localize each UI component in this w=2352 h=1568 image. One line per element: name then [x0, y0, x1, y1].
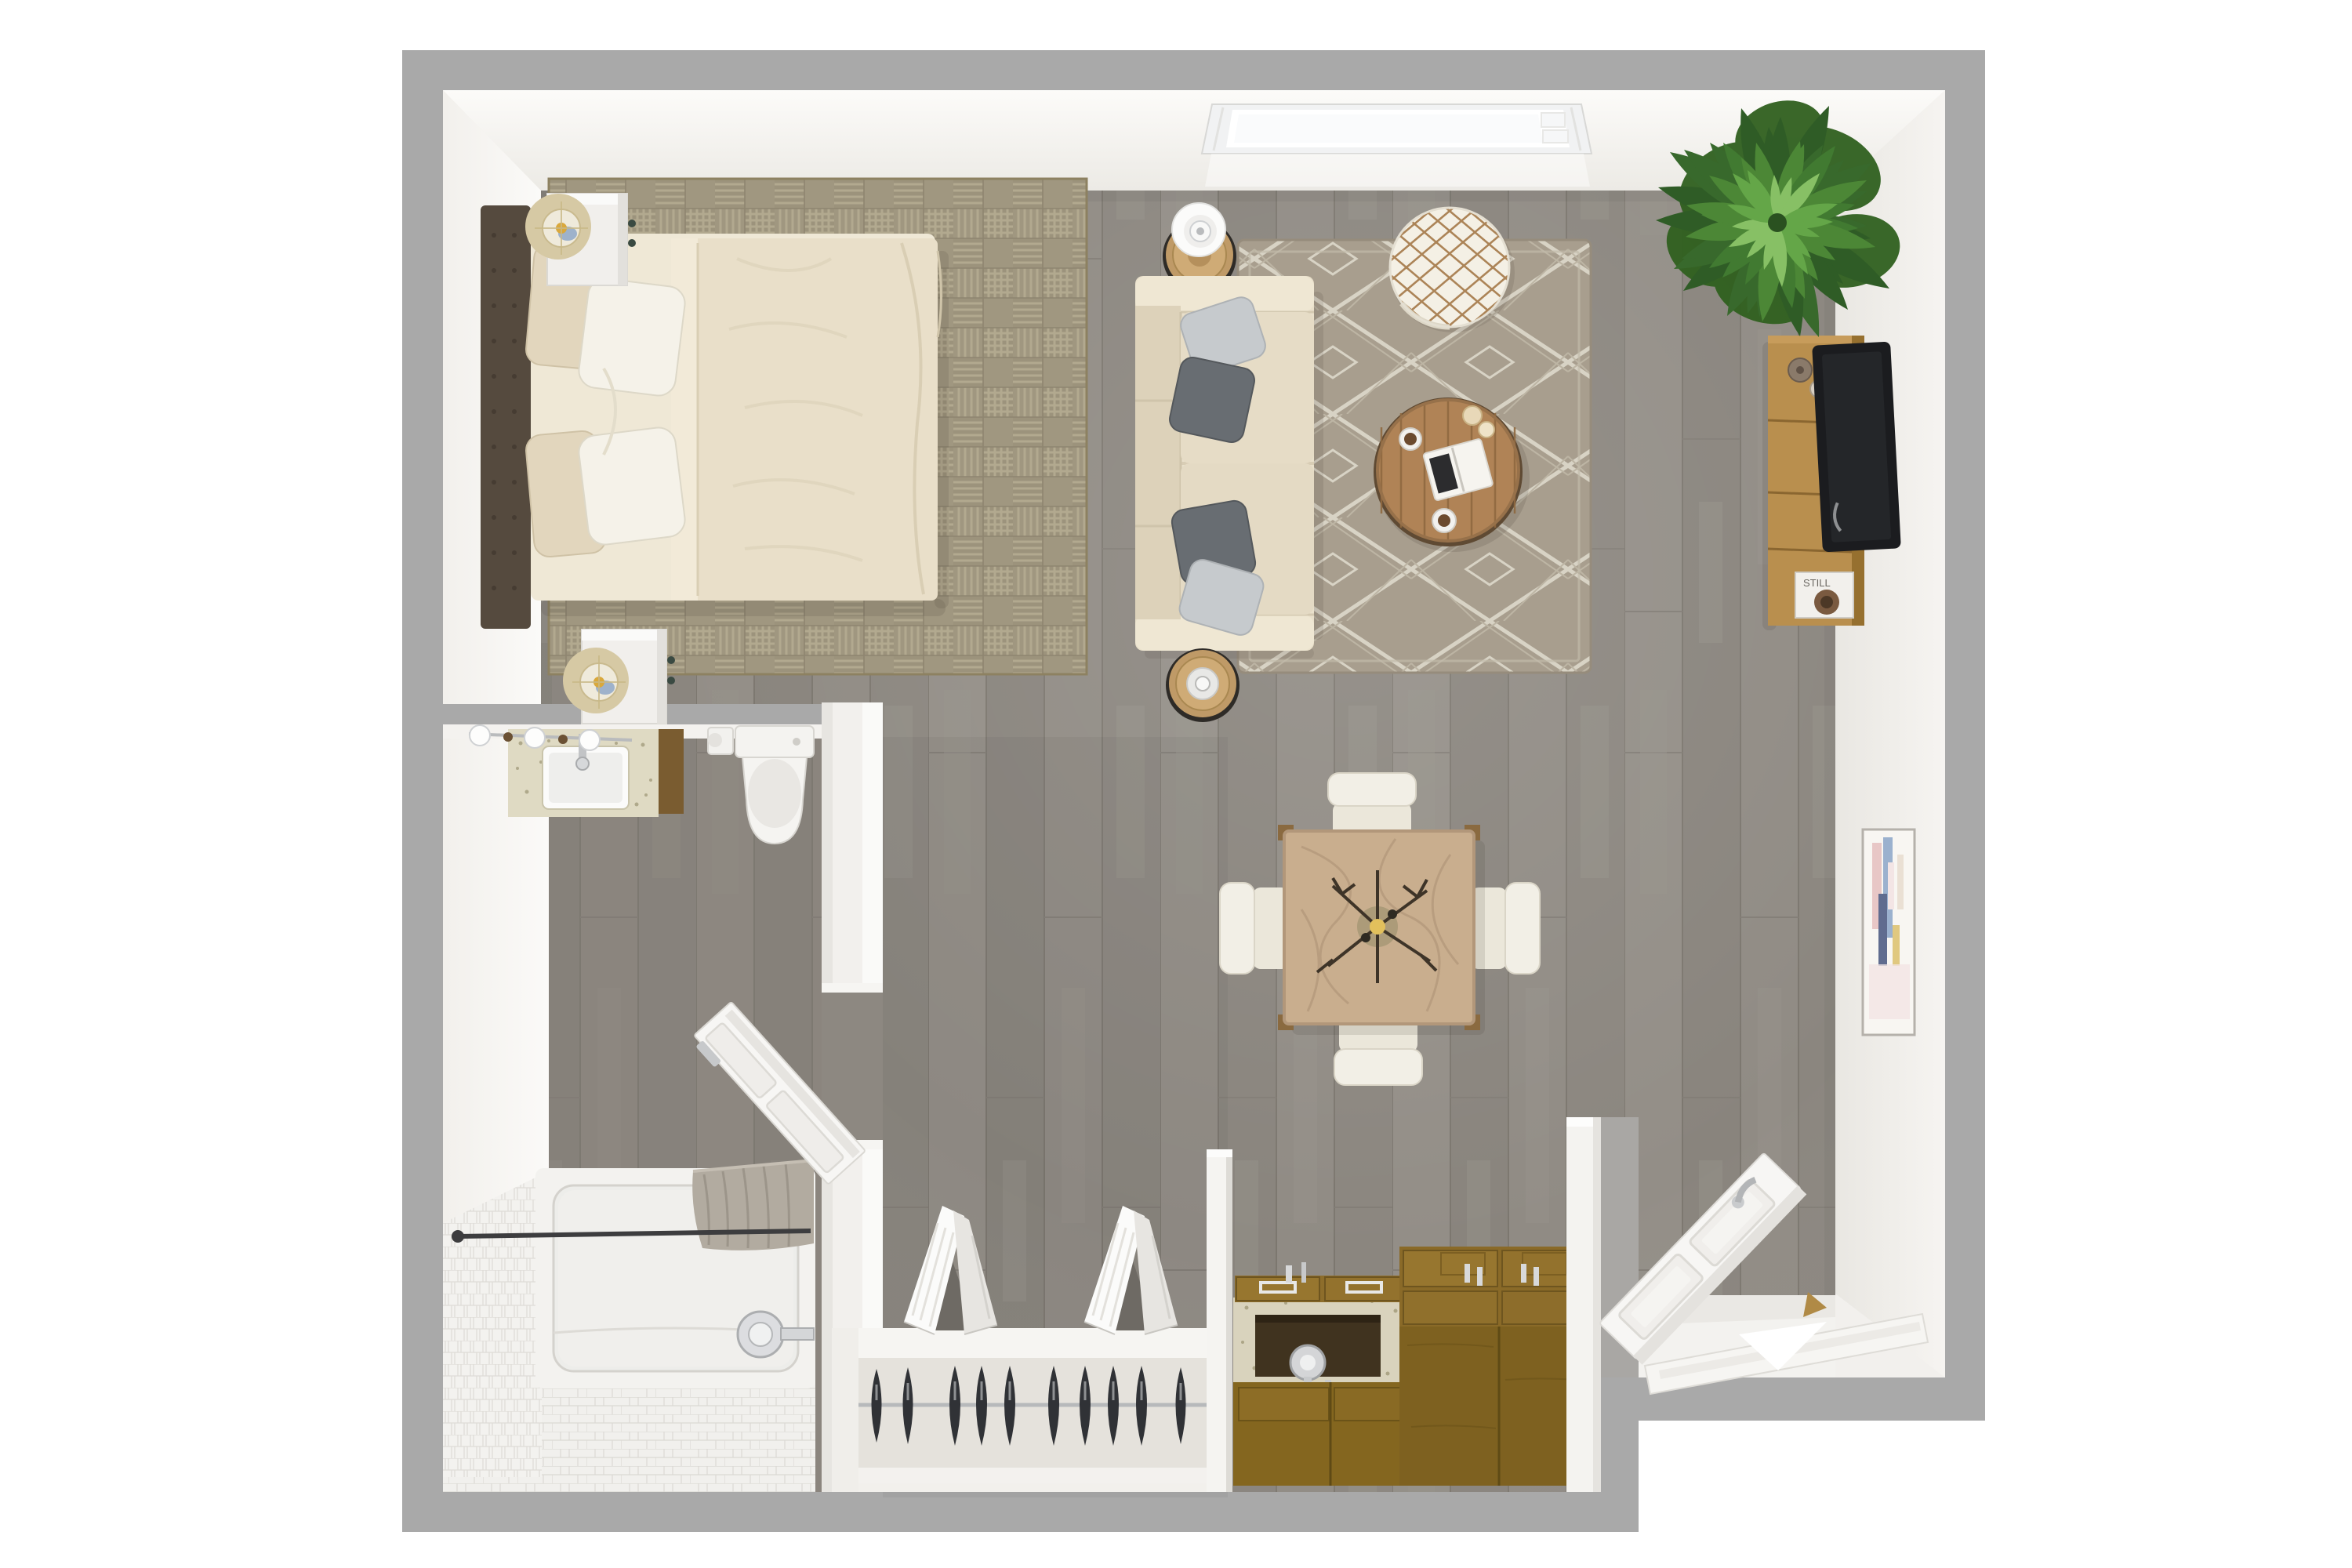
svg-text:STILL: STILL [1803, 577, 1831, 589]
